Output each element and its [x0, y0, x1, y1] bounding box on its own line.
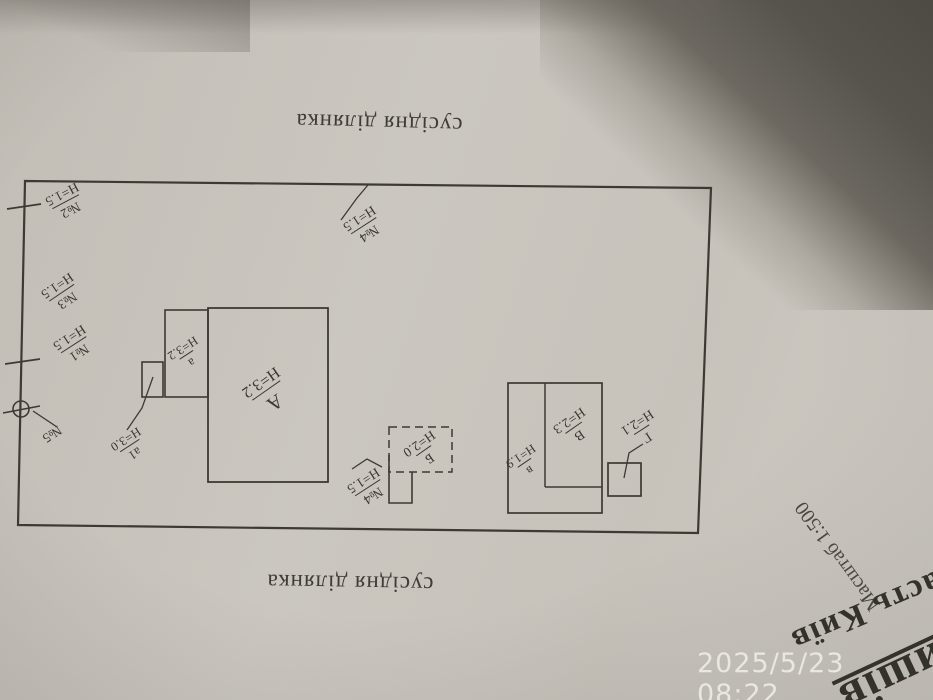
neighbor-plot-label-bottom: сусідня ділянка	[266, 569, 433, 598]
neighbor-plot-label-top: сусідня ділянка	[295, 108, 462, 138]
fence-tick-2	[5, 359, 40, 364]
plan-drawing	[0, 0, 933, 700]
site-plan-photo: сусідня ділянка сусідня ділянка №2 Н=1.5…	[0, 0, 933, 700]
leader-fence4-bottom	[352, 459, 382, 469]
leader-a1	[127, 377, 153, 430]
camera-timestamp: 2025/5/23 08:22	[697, 648, 933, 700]
structure-G	[608, 463, 641, 496]
building-B-solid	[389, 455, 412, 503]
